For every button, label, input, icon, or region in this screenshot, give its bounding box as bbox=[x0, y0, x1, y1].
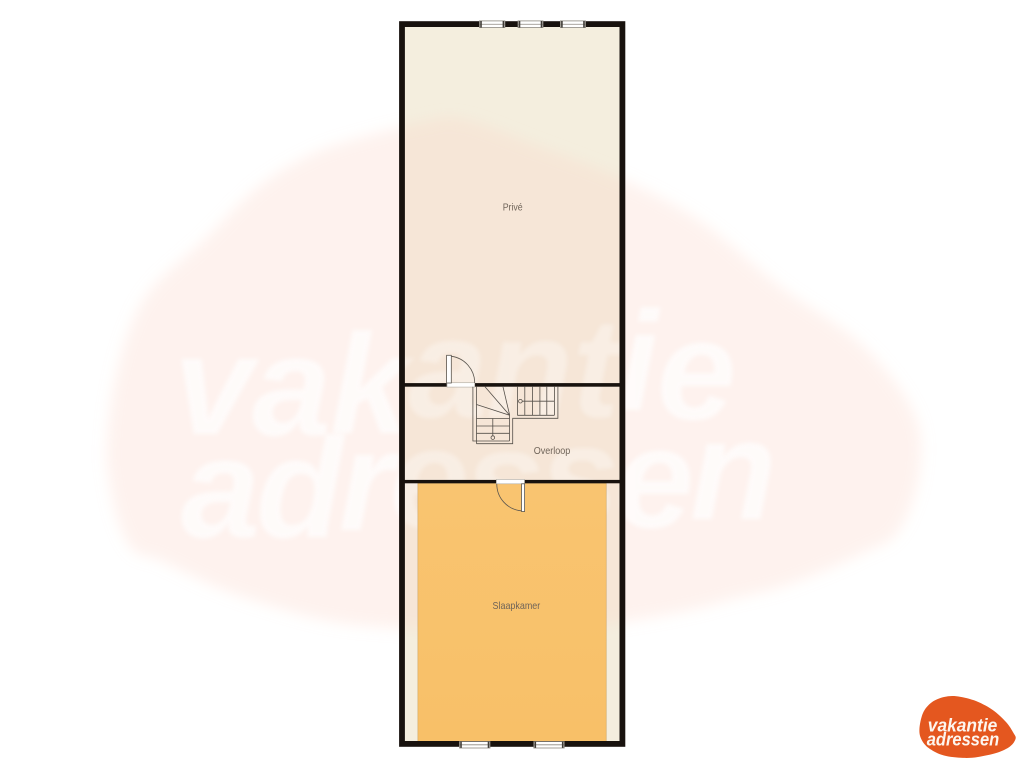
svg-text:Privé: Privé bbox=[503, 202, 523, 213]
svg-text:Slaapkamer: Slaapkamer bbox=[493, 601, 541, 612]
svg-text:Overloop: Overloop bbox=[534, 446, 571, 457]
svg-text:adressen: adressen bbox=[927, 728, 1000, 749]
